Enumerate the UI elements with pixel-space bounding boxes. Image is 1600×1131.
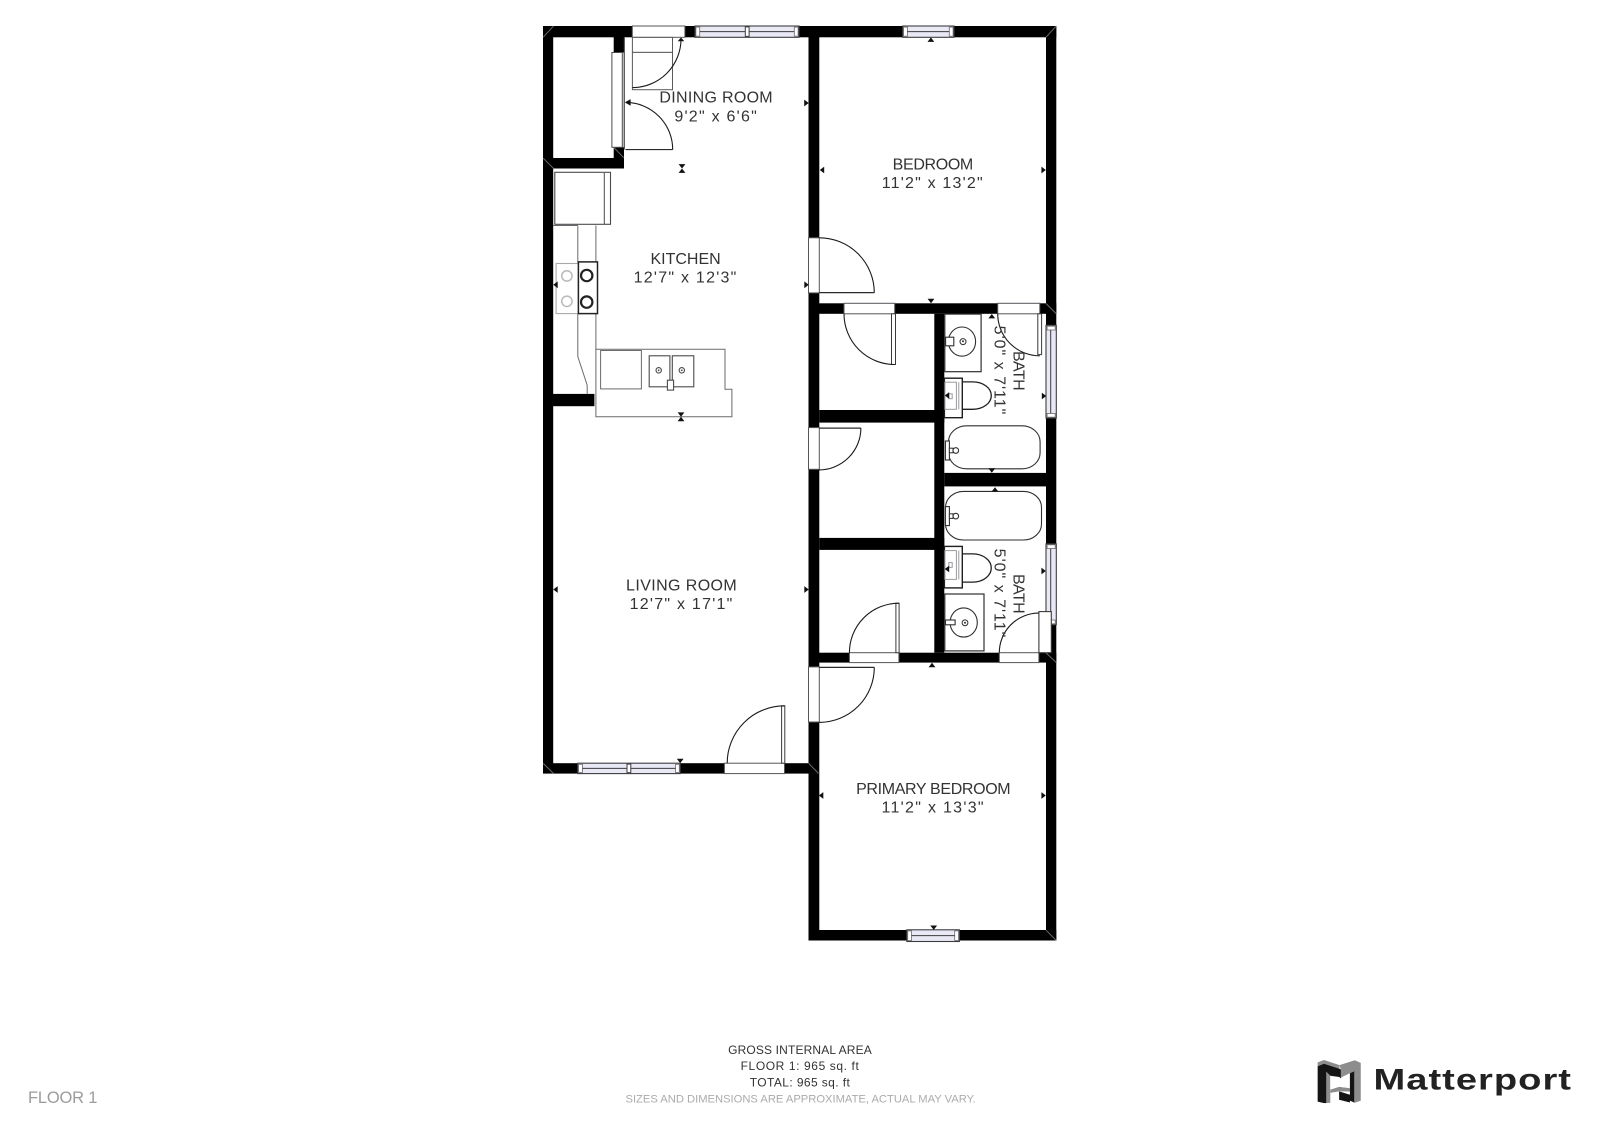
svg-text:BATH: BATH — [1010, 574, 1027, 613]
svg-text:GROSS INTERNAL AREA: GROSS INTERNAL AREA — [728, 1043, 872, 1057]
svg-text:FLOOR 1: 965 sq. ft: FLOOR 1: 965 sq. ft — [741, 1059, 860, 1073]
svg-text:5'0" x 7'11": 5'0" x 7'11" — [991, 549, 1008, 639]
svg-text:TOTAL: 965 sq. ft: TOTAL: 965 sq. ft — [750, 1075, 851, 1089]
svg-text:11'2" x 13'2": 11'2" x 13'2" — [882, 175, 984, 192]
svg-text:12'7" x 17'1": 12'7" x 17'1" — [630, 596, 734, 613]
svg-text:BATH: BATH — [1010, 351, 1027, 390]
svg-text:FLOOR 1: FLOOR 1 — [28, 1089, 97, 1107]
svg-text:PRIMARY BEDROOM: PRIMARY BEDROOM — [856, 781, 1010, 798]
svg-text:Matterport: Matterport — [1374, 1063, 1573, 1096]
svg-text:9'2" x 6'6": 9'2" x 6'6" — [674, 108, 758, 125]
svg-text:BEDROOM: BEDROOM — [893, 156, 973, 173]
svg-text:LIVING ROOM: LIVING ROOM — [626, 577, 737, 594]
svg-text:11'2" x 13'3": 11'2" x 13'3" — [881, 800, 984, 817]
svg-text:5'0" x 7'11": 5'0" x 7'11" — [991, 326, 1008, 416]
svg-text:12'7" x 12'3": 12'7" x 12'3" — [634, 270, 738, 287]
svg-text:KITCHEN: KITCHEN — [650, 251, 720, 268]
svg-text:SIZES AND DIMENSIONS ARE APPRO: SIZES AND DIMENSIONS ARE APPROXIMATE, AC… — [625, 1094, 975, 1106]
svg-text:DINING ROOM: DINING ROOM — [659, 90, 773, 107]
